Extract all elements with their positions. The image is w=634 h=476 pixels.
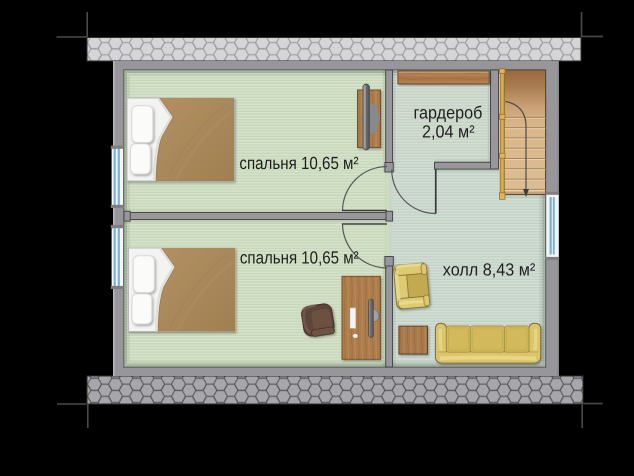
svg-text:спальня 10,65 м²: спальня 10,65 м² (239, 153, 358, 173)
svg-text:холл 8,43 м²: холл 8,43 м² (443, 259, 536, 279)
svg-text:спальня 10,65 м²: спальня 10,65 м² (240, 247, 359, 267)
svg-text:гардероб: гардероб (414, 103, 483, 123)
svg-text:2,04 м²: 2,04 м² (422, 122, 475, 142)
